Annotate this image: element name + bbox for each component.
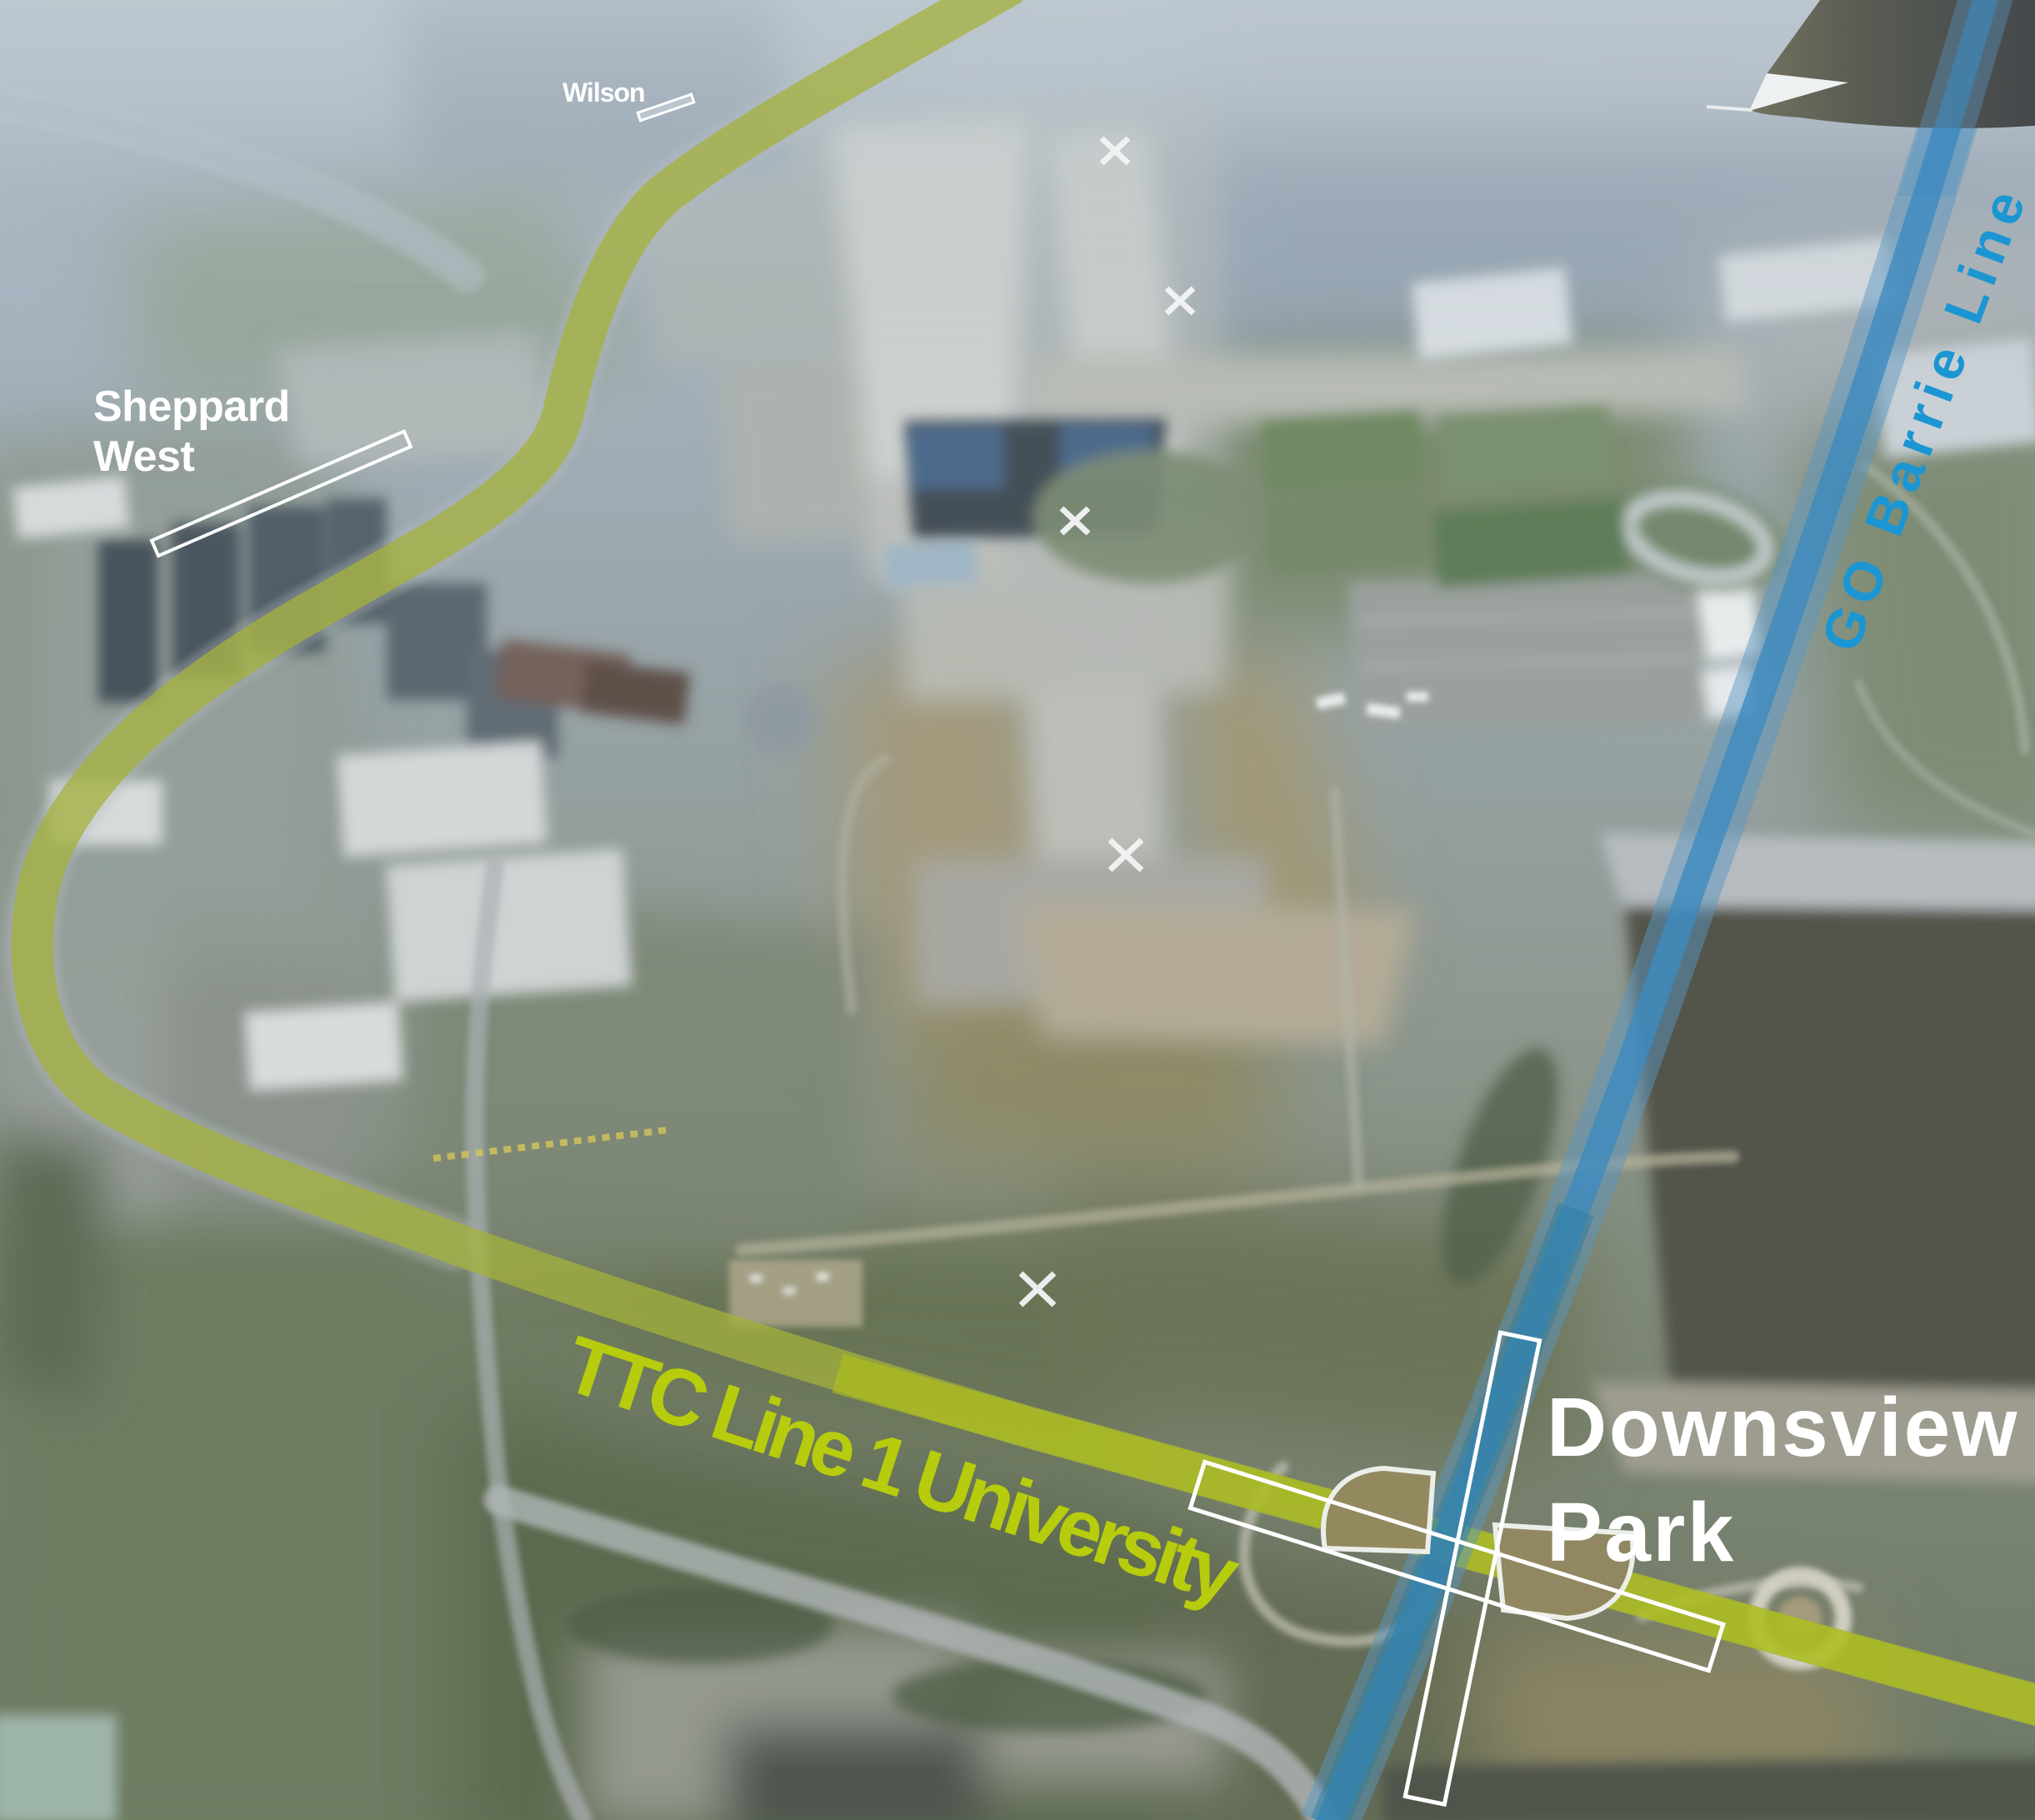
svg-text:Downsview: Downsview (1547, 1381, 2019, 1474)
svg-text:Sheppard: Sheppard (93, 382, 290, 431)
svg-text:West: West (93, 432, 194, 481)
svg-text:Park: Park (1547, 1486, 1736, 1579)
svg-text:Wilson: Wilson (562, 77, 645, 107)
